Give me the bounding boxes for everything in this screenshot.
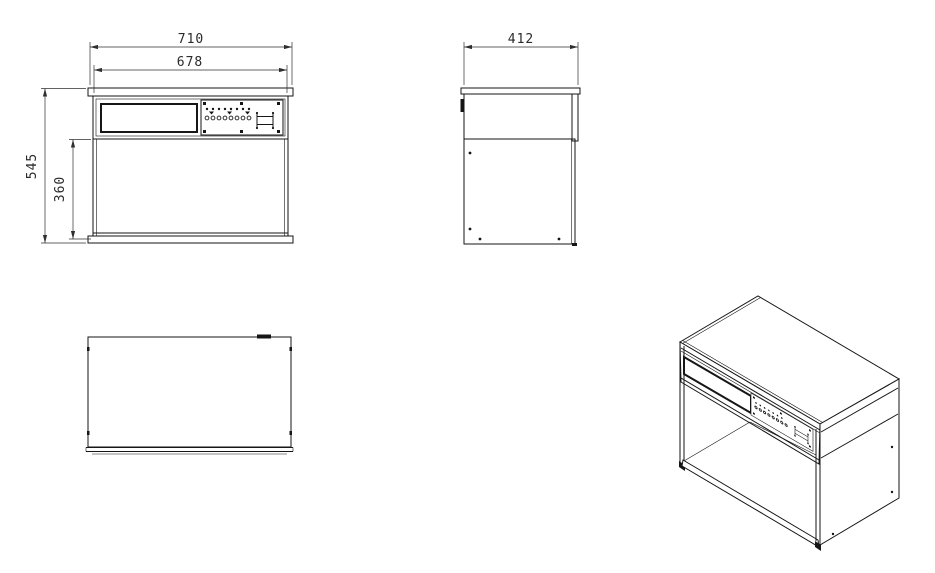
- iso-bottom-rail: [682, 460, 819, 547]
- top-front-edge-band: [86, 448, 293, 455]
- side-front-strip: [572, 94, 578, 141]
- power-switch: [461, 99, 465, 112]
- side-body: [464, 139, 575, 244]
- drawing-svg: 710 678 545 360: [0, 0, 935, 573]
- top-plan-view: [86, 335, 293, 455]
- side-foot: [572, 243, 577, 246]
- side-screw-dots: [469, 152, 561, 241]
- side-roof-band: [461, 88, 580, 94]
- push-button-row: [205, 116, 251, 120]
- dim-label-front-outer-height: 545: [25, 153, 40, 179]
- top-outline: [88, 337, 291, 447]
- technical-drawing-canvas: 710 678 545 360: [0, 0, 935, 573]
- dimension-side-depth: 412: [464, 32, 578, 85]
- front-roof-band: [88, 88, 293, 96]
- dimension-front-inner-width: 678: [94, 55, 287, 93]
- indicator-led-row: [206, 108, 250, 110]
- side-view: [461, 88, 581, 246]
- isometric-view: [679, 296, 899, 551]
- dimension-front-opening-height: 360: [53, 140, 91, 240]
- front-base-band: [88, 236, 293, 243]
- front-body: [93, 139, 288, 236]
- bracket-symbol: [256, 112, 274, 129]
- dim-label-front-inner-width: 678: [177, 55, 203, 70]
- front-view: [88, 88, 293, 243]
- dim-label-front-opening-height: 360: [53, 176, 68, 202]
- control-panel: [201, 100, 283, 135]
- dim-label-side-depth: 412: [508, 32, 534, 47]
- latch-tab: [257, 335, 271, 339]
- dim-label-front-outer-width: 710: [178, 32, 204, 47]
- front-lamp-window: [101, 104, 197, 132]
- side-lamp-housing: [464, 94, 572, 139]
- dimension-front-outer-height: 545: [25, 89, 86, 244]
